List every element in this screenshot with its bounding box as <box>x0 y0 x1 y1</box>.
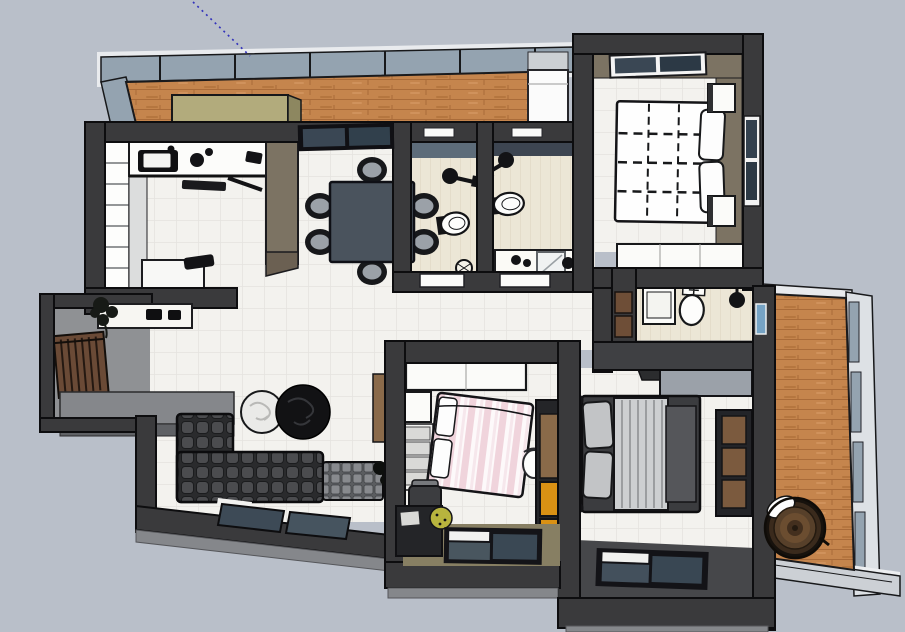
vanity-faucet <box>511 255 521 265</box>
bath2-door-slab[interactable] <box>500 274 550 287</box>
wall-bedroom3-bottom[interactable] <box>558 598 775 628</box>
plant-dot <box>436 514 439 517</box>
nightstand-edge <box>708 196 713 226</box>
console-item <box>146 309 162 320</box>
round-rug-black[interactable] <box>276 385 330 439</box>
living-window-pane[interactable] <box>286 512 350 539</box>
shelf-board <box>722 480 746 508</box>
nightstand-edge <box>708 84 713 112</box>
wall-master-left[interactable] <box>573 34 593 292</box>
railing-glass-pane <box>849 302 859 362</box>
console-item <box>168 310 181 320</box>
pillow <box>582 401 613 449</box>
toilet[interactable] <box>679 285 705 325</box>
wall-panel-brown <box>615 292 632 313</box>
kettle[interactable] <box>190 153 204 167</box>
wall-bedroom2-top[interactable] <box>385 341 580 363</box>
master-top-window[interactable] <box>610 52 707 77</box>
wall-bedroom3-bottom-face <box>566 626 768 632</box>
sectional-sofa-bottom[interactable] <box>177 452 323 502</box>
plant[interactable] <box>430 507 452 529</box>
gray-double-bed[interactable] <box>582 396 700 512</box>
bath1-window-slit[interactable] <box>424 128 454 137</box>
wall-right-lower[interactable] <box>753 286 775 630</box>
shower-head[interactable] <box>729 292 745 308</box>
pillow <box>583 451 613 498</box>
plaid-double-bed[interactable] <box>615 101 713 223</box>
vanity-item <box>523 259 531 267</box>
washing-machine[interactable] <box>528 70 568 122</box>
dining-window[interactable] <box>298 123 395 152</box>
plant-dot <box>439 523 442 526</box>
wall-bedroom-shared[interactable] <box>558 341 580 602</box>
ensuite-window[interactable] <box>756 304 766 334</box>
wall-bath-a[interactable] <box>393 122 411 292</box>
balcony-end-panel <box>528 52 568 70</box>
shelf-board <box>722 448 746 476</box>
bath1-door-slab[interactable] <box>420 274 464 287</box>
porch-wall-left[interactable] <box>40 294 54 432</box>
tall-cabinet-column[interactable] <box>105 142 129 308</box>
plant-dot <box>444 519 447 522</box>
shelf-board <box>722 416 746 444</box>
shower-head[interactable] <box>442 168 458 184</box>
pillow <box>435 397 457 437</box>
slatted-fence[interactable] <box>53 332 108 398</box>
nightstand[interactable] <box>404 392 431 422</box>
headboard-cushion <box>405 457 430 470</box>
laundry-balcony[interactable] <box>97 42 578 134</box>
pot <box>205 148 213 156</box>
blanket-fold <box>666 406 696 502</box>
sink-basin <box>143 153 171 168</box>
headboard-cushion <box>405 427 430 440</box>
railing-glass-pane <box>855 512 865 570</box>
model-viewport <box>0 0 905 632</box>
taupe-partition[interactable] <box>266 138 298 264</box>
faucet <box>168 146 175 153</box>
wall-bedroom3-top[interactable] <box>593 342 763 370</box>
pink-striped-bed[interactable] <box>427 393 534 498</box>
bath2-window-slit[interactable] <box>512 128 542 137</box>
bedroom2-window[interactable] <box>444 527 543 565</box>
wall-bath-b[interactable] <box>477 122 493 292</box>
master-right-window[interactable] <box>744 116 760 206</box>
railing-glass-pane <box>853 442 863 502</box>
bedroom3-window[interactable] <box>595 548 708 590</box>
wall-bedroom2-bottom-face <box>388 588 558 598</box>
pillow <box>430 438 452 478</box>
storage-chest[interactable] <box>172 95 288 122</box>
wall-master-top[interactable] <box>573 34 763 54</box>
floorplan-render <box>0 0 905 632</box>
wall-panel-brown <box>615 316 632 337</box>
desk-paper <box>401 511 420 526</box>
headboard-cushion <box>405 442 430 455</box>
wall-left[interactable] <box>85 122 105 314</box>
sink-basin <box>647 292 671 318</box>
pillow <box>699 109 726 160</box>
bath1-wall-face <box>411 142 477 158</box>
railing-glass-pane <box>851 372 861 432</box>
